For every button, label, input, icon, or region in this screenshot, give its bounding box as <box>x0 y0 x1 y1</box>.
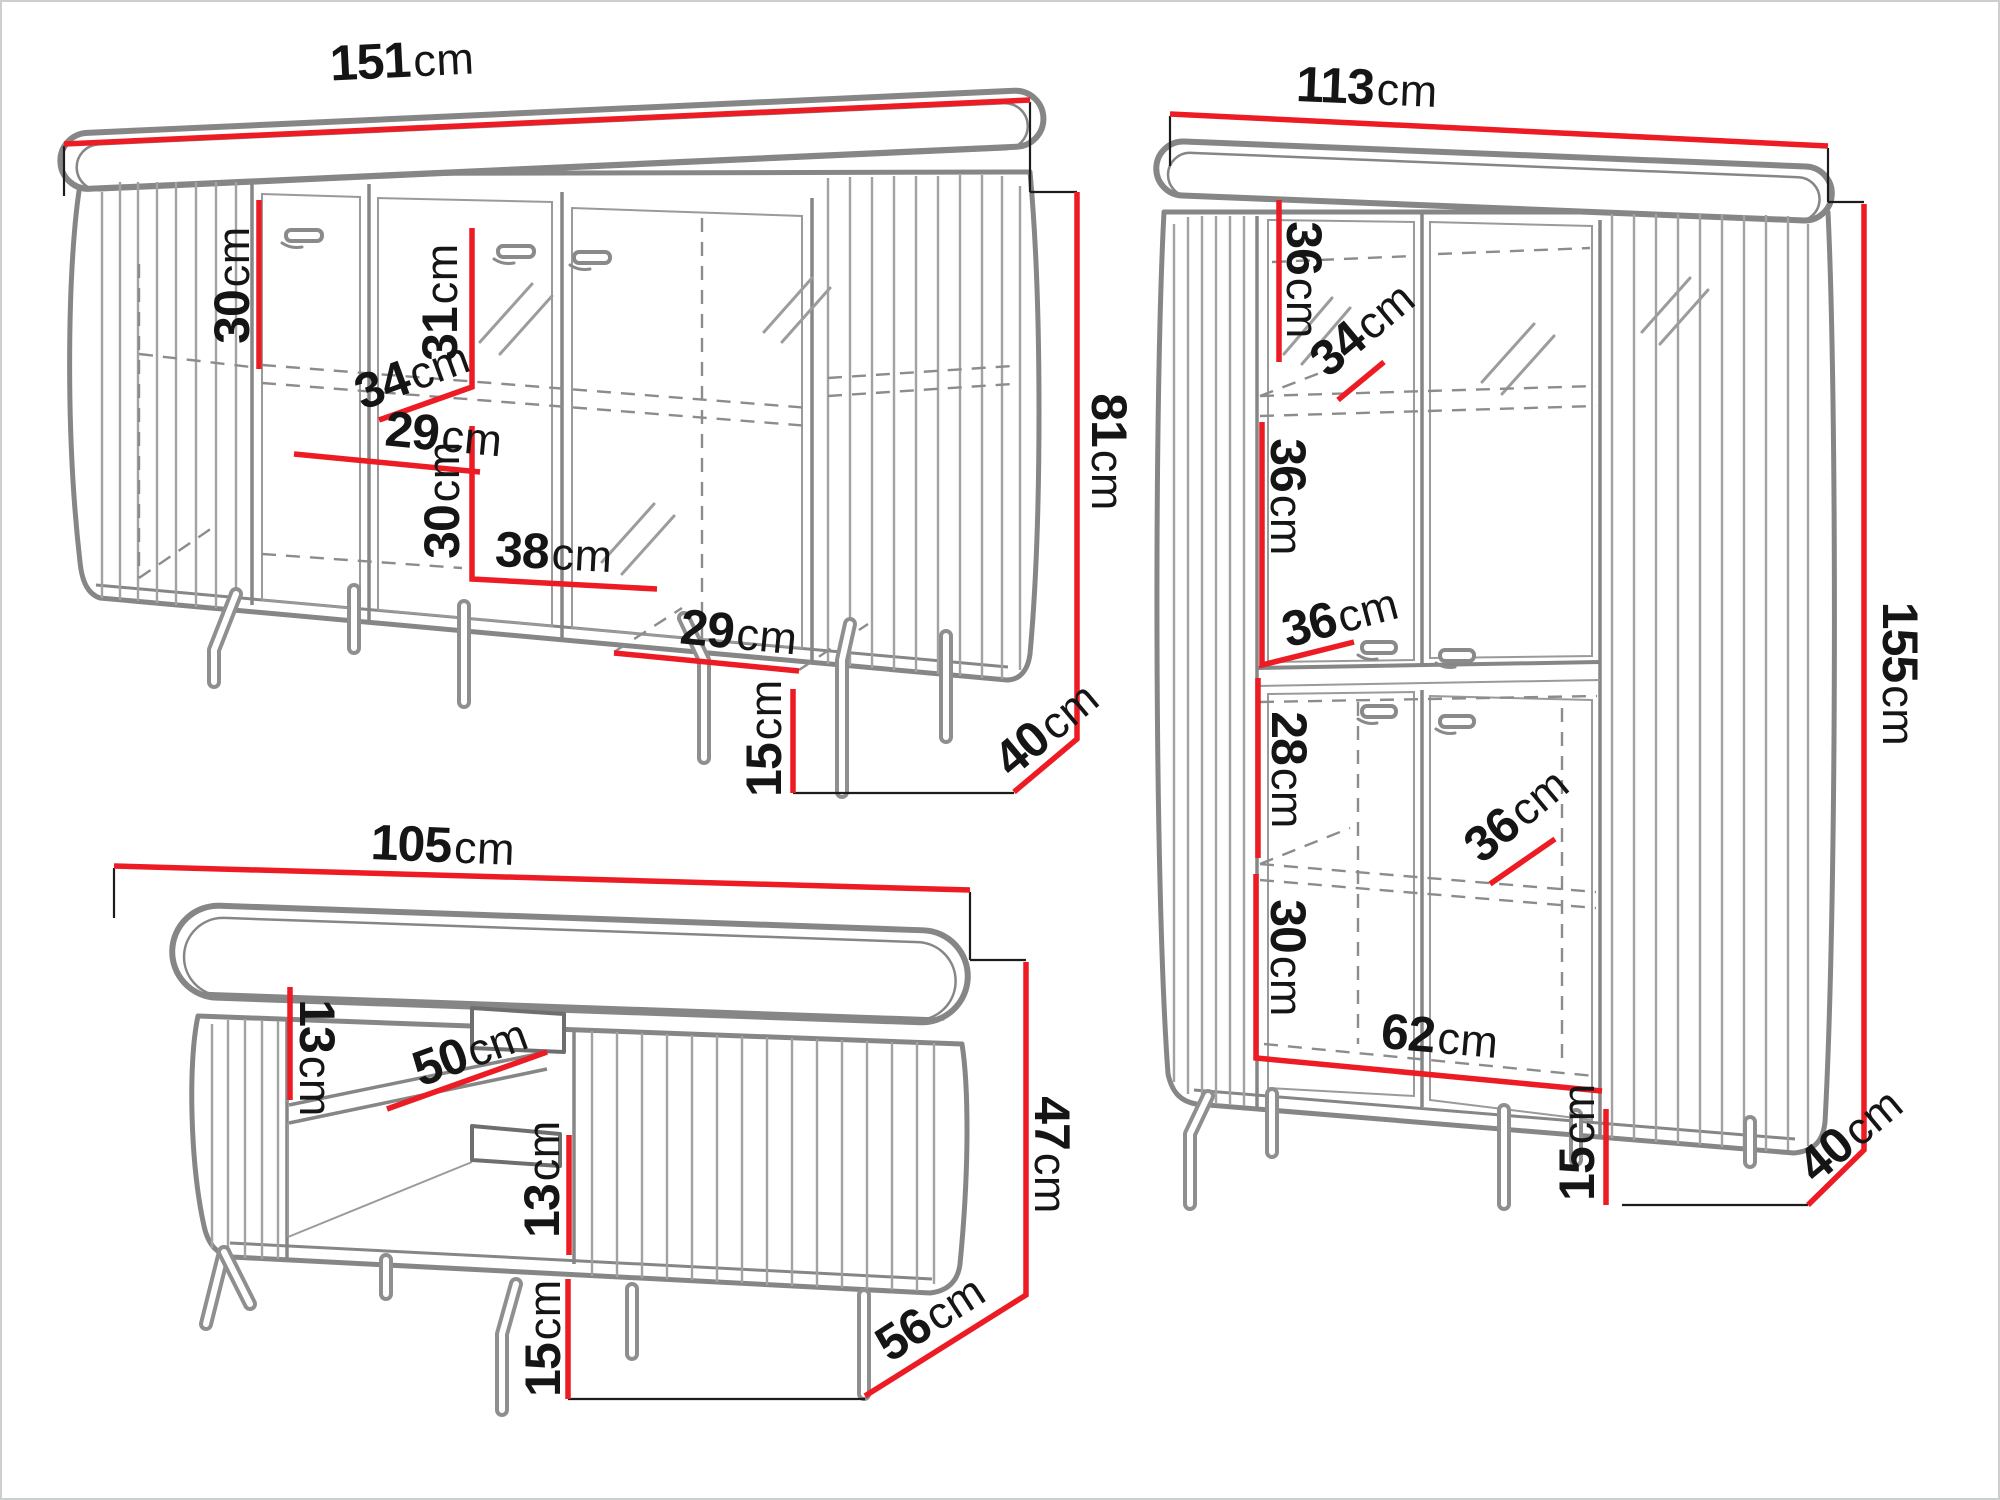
dim-sideboard-inner-top-height: 30cm <box>207 226 257 344</box>
dim-display-lower-inner-width: 62cm <box>1379 1006 1501 1066</box>
dim-table-upper-niche-height: 13cm <box>292 999 342 1117</box>
sideboard-drawing <box>59 89 1077 793</box>
dim-table-lower-niche-height: 13cm <box>517 1120 567 1238</box>
dim-table-leg-height: 15cm <box>518 1279 568 1397</box>
dim-sideboard-inner-left-width: 29cm <box>383 403 505 464</box>
dim-display-width: 113cm <box>1295 59 1439 115</box>
dim-display-leg-height: 15cm <box>1552 1083 1602 1201</box>
dim-sideboard-width: 151cm <box>329 32 476 89</box>
dim-sideboard-inner-center-width: 38cm <box>494 524 614 580</box>
dim-display-lower-bottom-height: 30cm <box>1263 899 1313 1017</box>
dim-display-height: 155cm <box>1875 602 1925 746</box>
dim-table-width: 105cm <box>370 817 516 873</box>
dim-sideboard-height: 81cm <box>1084 393 1134 511</box>
dim-display-upper-inner-height: 36cm <box>1279 221 1329 339</box>
display-cabinet-drawing <box>1155 114 1864 1205</box>
dim-display-lower-top-height: 28cm <box>1264 711 1314 829</box>
dim-sideboard-leg-height: 15cm <box>739 679 789 797</box>
dim-sideboard-inner-right-width: 29cm <box>678 601 800 662</box>
dim-table-height: 47cm <box>1027 1096 1077 1214</box>
furniture-dimension-diagram: 151cm 30cm 31cm 34cm 30cm 38cm 29cm 29cm… <box>0 0 2000 1500</box>
dim-display-upper-left-height: 36cm <box>1263 438 1313 556</box>
